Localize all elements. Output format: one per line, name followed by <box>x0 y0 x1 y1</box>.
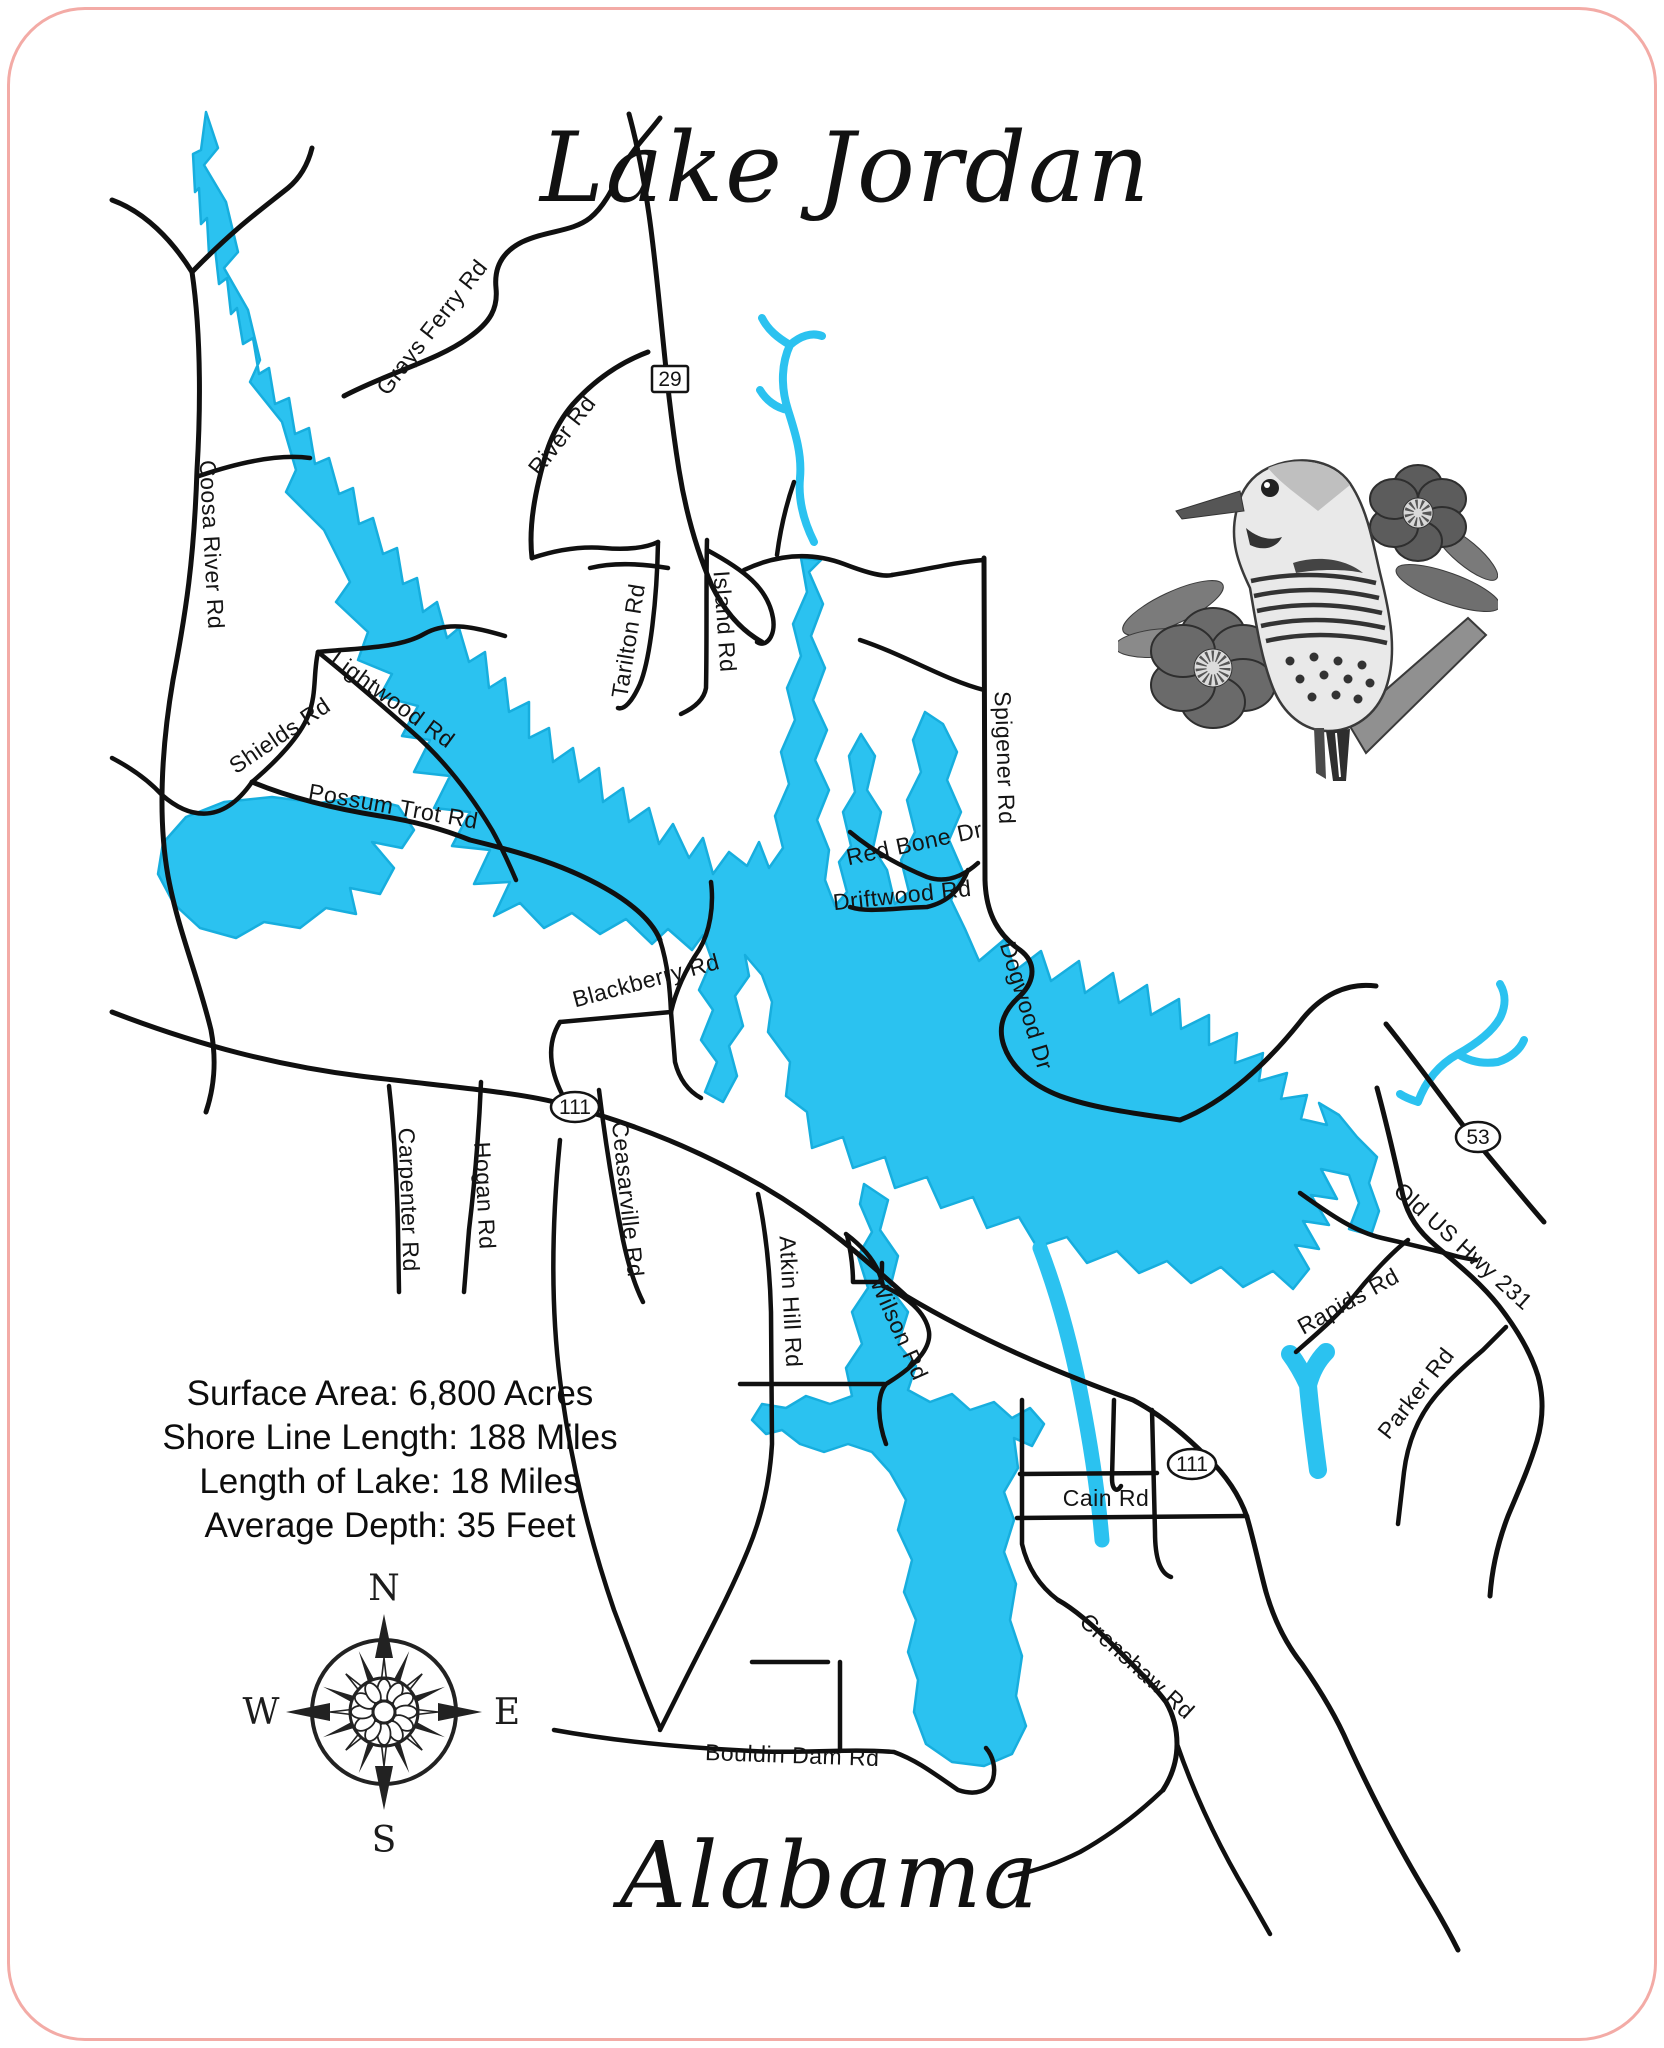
road-north-f <box>777 482 794 555</box>
stat-shoreline: Shore Line Length: 188 Miles <box>120 1416 660 1460</box>
road-atkin-hill <box>660 1194 772 1730</box>
road-blackberry-c <box>671 1012 701 1098</box>
road-label-rapids: Rapids Rd <box>1293 1263 1403 1340</box>
highway-shield-111-west: 111 <box>551 1092 599 1122</box>
road-label-crenshaw: Crenshaw Rd <box>1075 1608 1200 1724</box>
road-topleft-a <box>112 200 192 272</box>
road-label-tarilton: Tarilton Rd <box>606 582 650 700</box>
road-cain-upper <box>1020 1473 1157 1474</box>
highway-shield-29: 29 <box>652 366 688 392</box>
road-label-coosa-river: Coosa River Rd <box>195 459 230 629</box>
road-label-carpenter: Carpenter Rd <box>393 1127 424 1272</box>
road-label-grays-ferry: Grays Ferry Rd <box>371 254 493 399</box>
road-label-atkin-hill: Atkin Hill Rd <box>775 1235 808 1368</box>
lake-stats: Surface Area: 6,800 Acres Shore Line Len… <box>120 1372 660 1548</box>
highway-shield-111-east: 111 <box>1168 1449 1216 1479</box>
road-crenshaw-b <box>1177 1744 1270 1934</box>
road-label-spigener: Spigener Rd <box>990 691 1021 825</box>
map-sheet: Grays Ferry Rd River Rd Coosa River Rd S… <box>0 0 1664 2048</box>
road-label-bouldin-dam: Bouldin Dam Rd <box>705 1739 880 1771</box>
highway-shield-53: 53 <box>1456 1122 1500 1152</box>
compass-rose: N S E W <box>234 1552 534 1870</box>
road-old-us-231 <box>1377 1088 1542 1596</box>
compass-graphic <box>286 1614 482 1810</box>
compass-south-label: S <box>372 1820 397 1861</box>
compass-north-label: N <box>368 1568 400 1609</box>
highway-shield-111-west-label: 111 <box>559 1096 591 1119</box>
stat-length: Length of Lake: 18 Miles <box>120 1460 660 1504</box>
road-north-d <box>744 556 892 575</box>
road-label-island: Island Rd <box>708 570 741 673</box>
bird-flower-illustration <box>1118 412 1498 784</box>
compass-west-label: W <box>242 1692 279 1733</box>
road-north-b <box>590 564 668 568</box>
highway-shield-53-label: 53 <box>1466 1126 1489 1149</box>
state-name: Alabama <box>590 1822 1070 1929</box>
creek-topright <box>1400 984 1524 1102</box>
road-north-a <box>532 542 658 558</box>
road-label-shields: Shields Rd <box>224 692 335 779</box>
road-label-cain: Cain Rd <box>1063 1485 1150 1511</box>
creek-northeast <box>760 318 822 542</box>
compass-east-label: E <box>494 1692 520 1733</box>
road-label-river: River Rd <box>523 390 601 480</box>
pond-west <box>158 797 414 938</box>
road-spigener-cross <box>860 640 984 690</box>
road-label-blackberry: Blackberry Rd <box>570 948 723 1012</box>
stat-depth: Average Depth: 35 Feet <box>120 1504 660 1548</box>
stream-old-hwy <box>1290 1352 1326 1470</box>
road-vert-b <box>1112 1400 1121 1490</box>
road-north-e <box>892 560 984 575</box>
road-label-hogan: Hogan Rd <box>469 1141 501 1250</box>
stat-surface-area: Surface Area: 6,800 Acres <box>120 1372 660 1416</box>
highway-shield-111-east-label: 111 <box>1176 1453 1208 1476</box>
map-title: Lake Jordan <box>540 112 1100 224</box>
road-cain <box>1017 1516 1247 1518</box>
road-vert-c <box>1152 1410 1171 1577</box>
road-blackberry-b <box>551 1022 562 1094</box>
road-coosa-river <box>162 272 214 1112</box>
highway-shield-29-label: 29 <box>658 368 681 391</box>
